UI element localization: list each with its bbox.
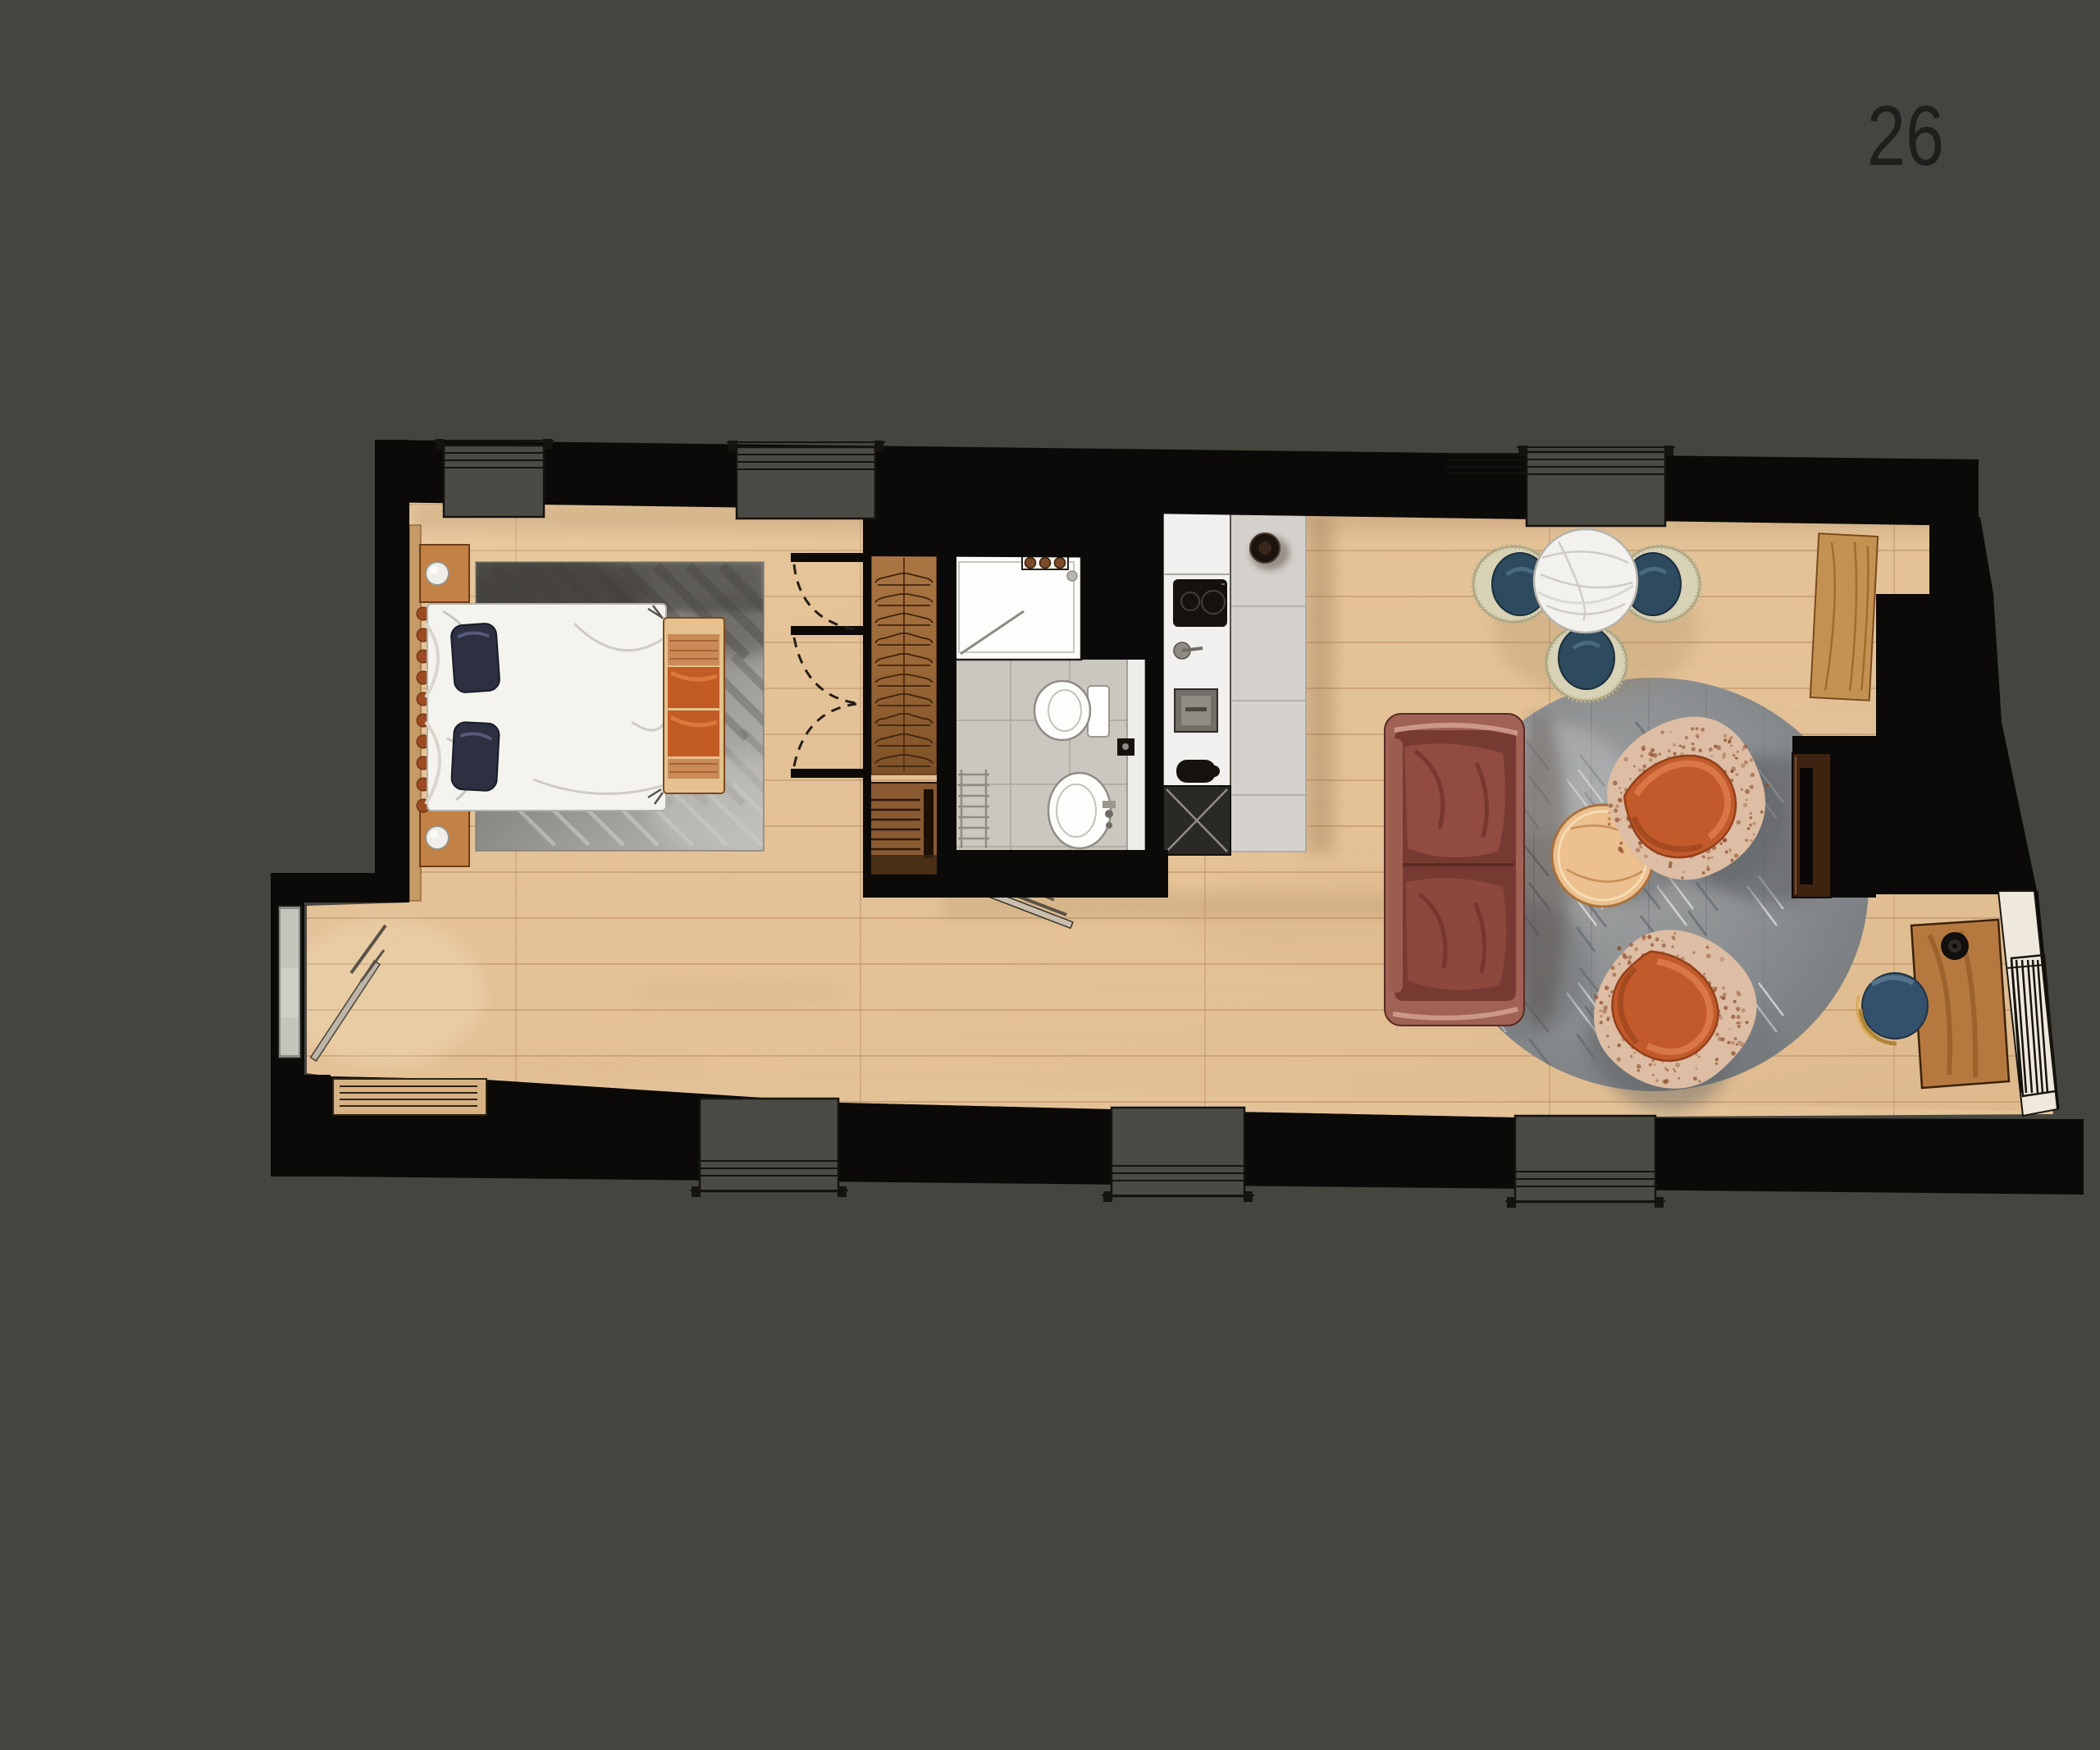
svg-text:26: 26 [1867,89,1944,184]
